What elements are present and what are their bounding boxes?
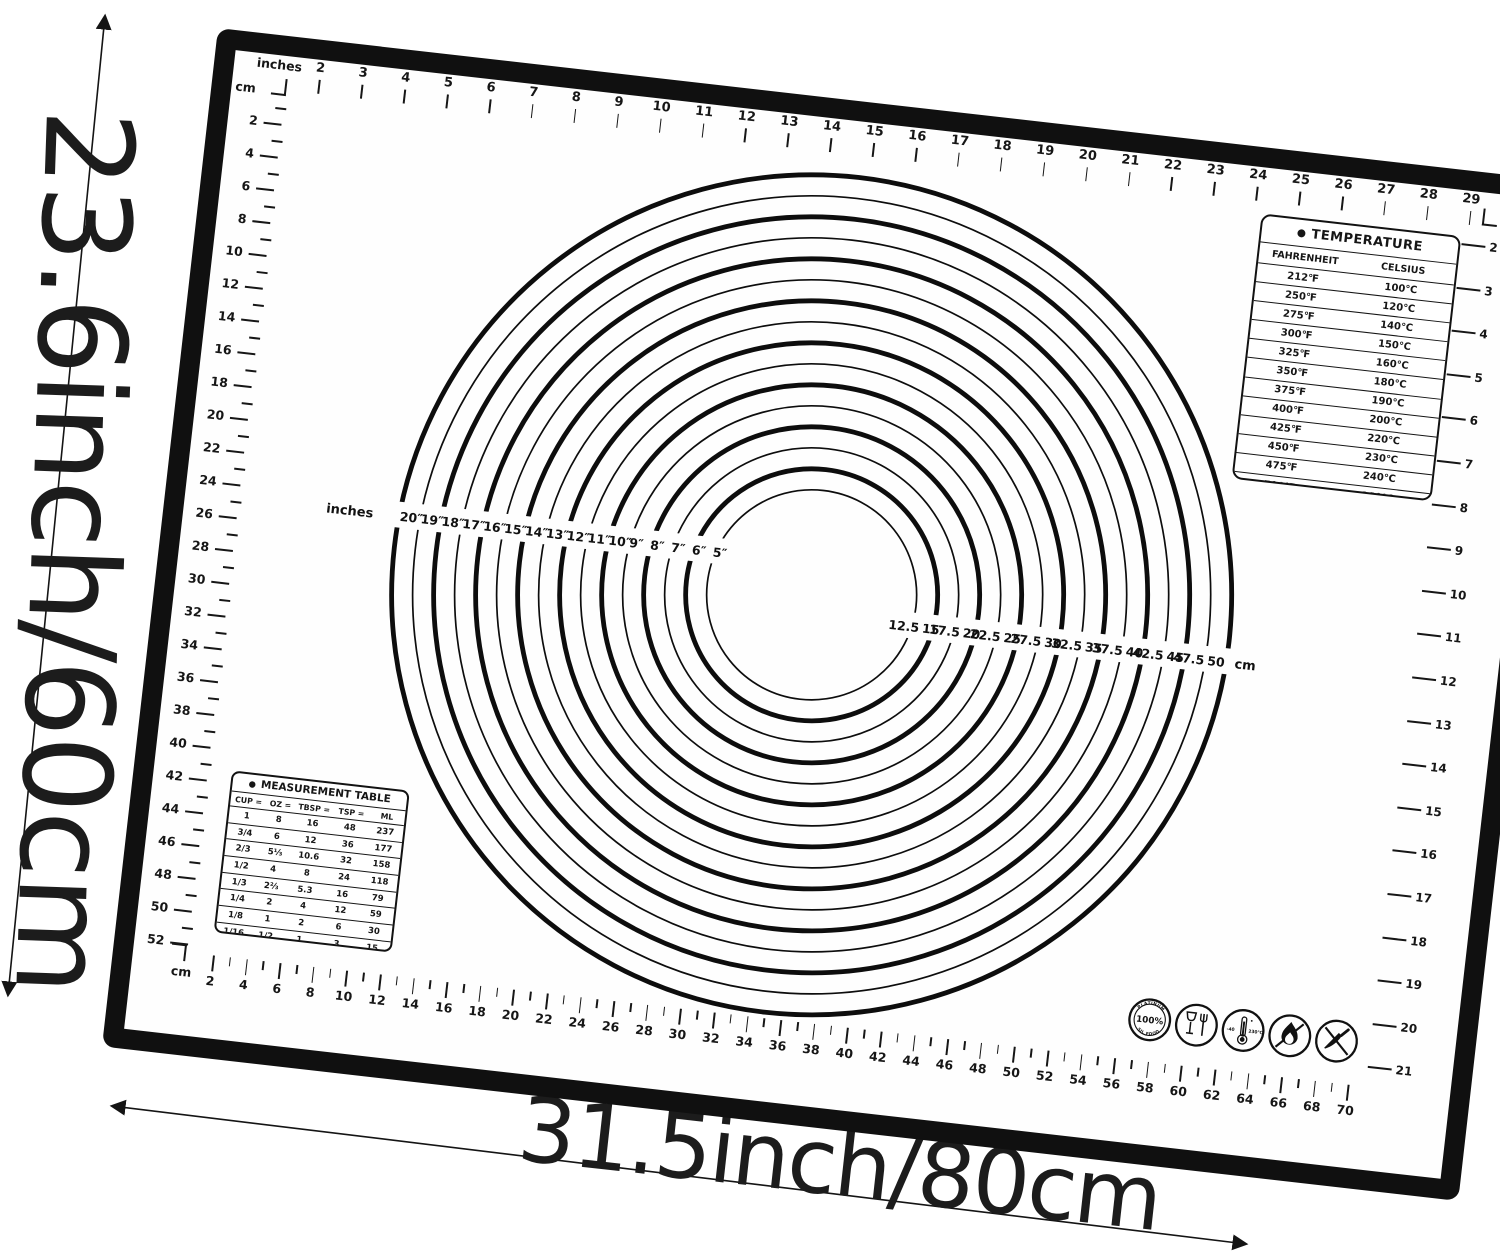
temp-min-label: -40 xyxy=(1226,1026,1235,1033)
measurement-cell: 237 xyxy=(367,825,404,839)
measurement-column: ML xyxy=(369,810,406,823)
measurement-cell: 2/3 xyxy=(225,842,262,856)
measurement-column: TBSP = xyxy=(294,801,334,814)
flame-icon xyxy=(1264,1010,1315,1061)
ring-inch-label: 6″ xyxy=(691,542,707,559)
measurement-column: TSP = xyxy=(333,806,370,819)
measurement-column: CUP = xyxy=(230,794,266,807)
measurement-cell: 8 xyxy=(287,866,327,880)
ring-16-inch xyxy=(440,223,1184,967)
measurement-cell: 1/8 xyxy=(217,909,254,923)
measurement-cell: 48 xyxy=(331,821,368,835)
measurement-cell: 4 xyxy=(283,899,323,913)
ring-cm-label: 50 xyxy=(1206,653,1225,670)
measurement-cell: 8 xyxy=(264,813,294,826)
ring-17-inch xyxy=(417,200,1207,990)
measurement-cell: 4 xyxy=(258,863,288,876)
glass-fork-icon xyxy=(1171,1000,1222,1051)
measurement-cell: 3/4 xyxy=(227,826,264,840)
measurement-cell: 158 xyxy=(363,858,400,872)
ring-5-inch xyxy=(695,479,927,711)
measurement-cell: 6 xyxy=(262,830,292,843)
measurement-cell: 36 xyxy=(330,837,367,851)
ring-inch-label: 5″ xyxy=(712,544,728,561)
bullet-icon: ● xyxy=(1296,227,1307,240)
measurement-cell: 118 xyxy=(361,875,398,889)
ring-10-inch xyxy=(579,362,1044,827)
measurement-cell: 30 xyxy=(356,924,393,938)
ring-8-inch xyxy=(626,409,998,781)
measurement-table: ● MEASUREMENT TABLE CUP =OZ =TBSP =TSP =… xyxy=(214,770,410,952)
product-image: { "mat": { "border_color": "#101010", "b… xyxy=(0,0,1500,1254)
hundred-percent-label: 100% xyxy=(1136,1015,1164,1028)
no-knife-icon xyxy=(1311,1016,1362,1067)
ring-15-inch xyxy=(463,246,1160,943)
temperature-range-icon: -40 230℃ xyxy=(1218,1005,1269,1056)
measurement-cell: 10.6 xyxy=(289,850,329,864)
circle-axis-label-cm: cm xyxy=(1234,657,1257,674)
measurement-cell: 2⅔ xyxy=(256,880,286,893)
ring-6-inch xyxy=(672,455,951,734)
measurement-cell: 177 xyxy=(365,842,402,856)
temperature-table: ● TEMPERATURE FAHRENHEIT CELSIUS 212℉100… xyxy=(1232,213,1462,501)
measurement-column: OZ = xyxy=(266,798,295,810)
measurement-cell: 1/3 xyxy=(221,876,258,890)
measurement-table-body: 1816482373/4612361772/35⅓10.6321581/2482… xyxy=(215,806,404,952)
measurement-cell: 16 xyxy=(292,816,332,830)
measurement-cell: 5.3 xyxy=(285,883,325,897)
ring-14-inch xyxy=(486,269,1137,920)
measurement-cell: 1/4 xyxy=(219,892,256,906)
temp-max-label: 230℃ xyxy=(1248,1029,1264,1037)
ring-19-inch xyxy=(370,153,1253,1036)
measurement-cell: 16 xyxy=(324,887,361,901)
measurement-cell: 32 xyxy=(328,854,365,868)
measurement-cell: 2 xyxy=(255,896,285,909)
ring-inch-label: 7″ xyxy=(670,540,686,557)
measurement-cell: 2 xyxy=(281,916,321,930)
circle-gauge-svg: inches20″19″18″17″16″15″14″13″12″11″10″9… xyxy=(129,50,1500,1134)
bullet-icon: ● xyxy=(248,778,256,789)
measurement-cell: 6 xyxy=(320,920,357,934)
measurement-cell: 5⅓ xyxy=(260,846,290,859)
ring-inch-label: 8″ xyxy=(649,537,665,554)
measurement-cell: 79 xyxy=(359,891,396,905)
ring-inch-label: 9″ xyxy=(629,535,645,552)
measurement-cell: 1 xyxy=(229,809,266,823)
ring-20-inch xyxy=(347,130,1277,1060)
ring-7-inch xyxy=(649,432,974,757)
measurement-cell: 12 xyxy=(290,833,330,847)
svg-text:SIL FOOD: SIL FOOD xyxy=(1136,1026,1161,1038)
temperature-table-body: 212℉100℃250℉120℃275℉140℃300℉150℃325℉160℃… xyxy=(1232,263,1454,501)
pastry-mat: inches cm inch cm 2345678910111213141516… xyxy=(102,28,1500,1201)
measurement-cell: 59 xyxy=(357,908,394,922)
measurement-cell: 1 xyxy=(253,913,283,926)
measurement-cell: 24 xyxy=(326,871,363,885)
circle-axis-label-inches: inches xyxy=(325,501,374,521)
platinum-food-grade-icon: 100% PLATINUM SIL FOOD xyxy=(1124,994,1175,1045)
ring-12-inch xyxy=(533,316,1091,874)
measurement-cell: 1/2 xyxy=(223,859,260,873)
measurement-cell: 12 xyxy=(322,904,359,918)
